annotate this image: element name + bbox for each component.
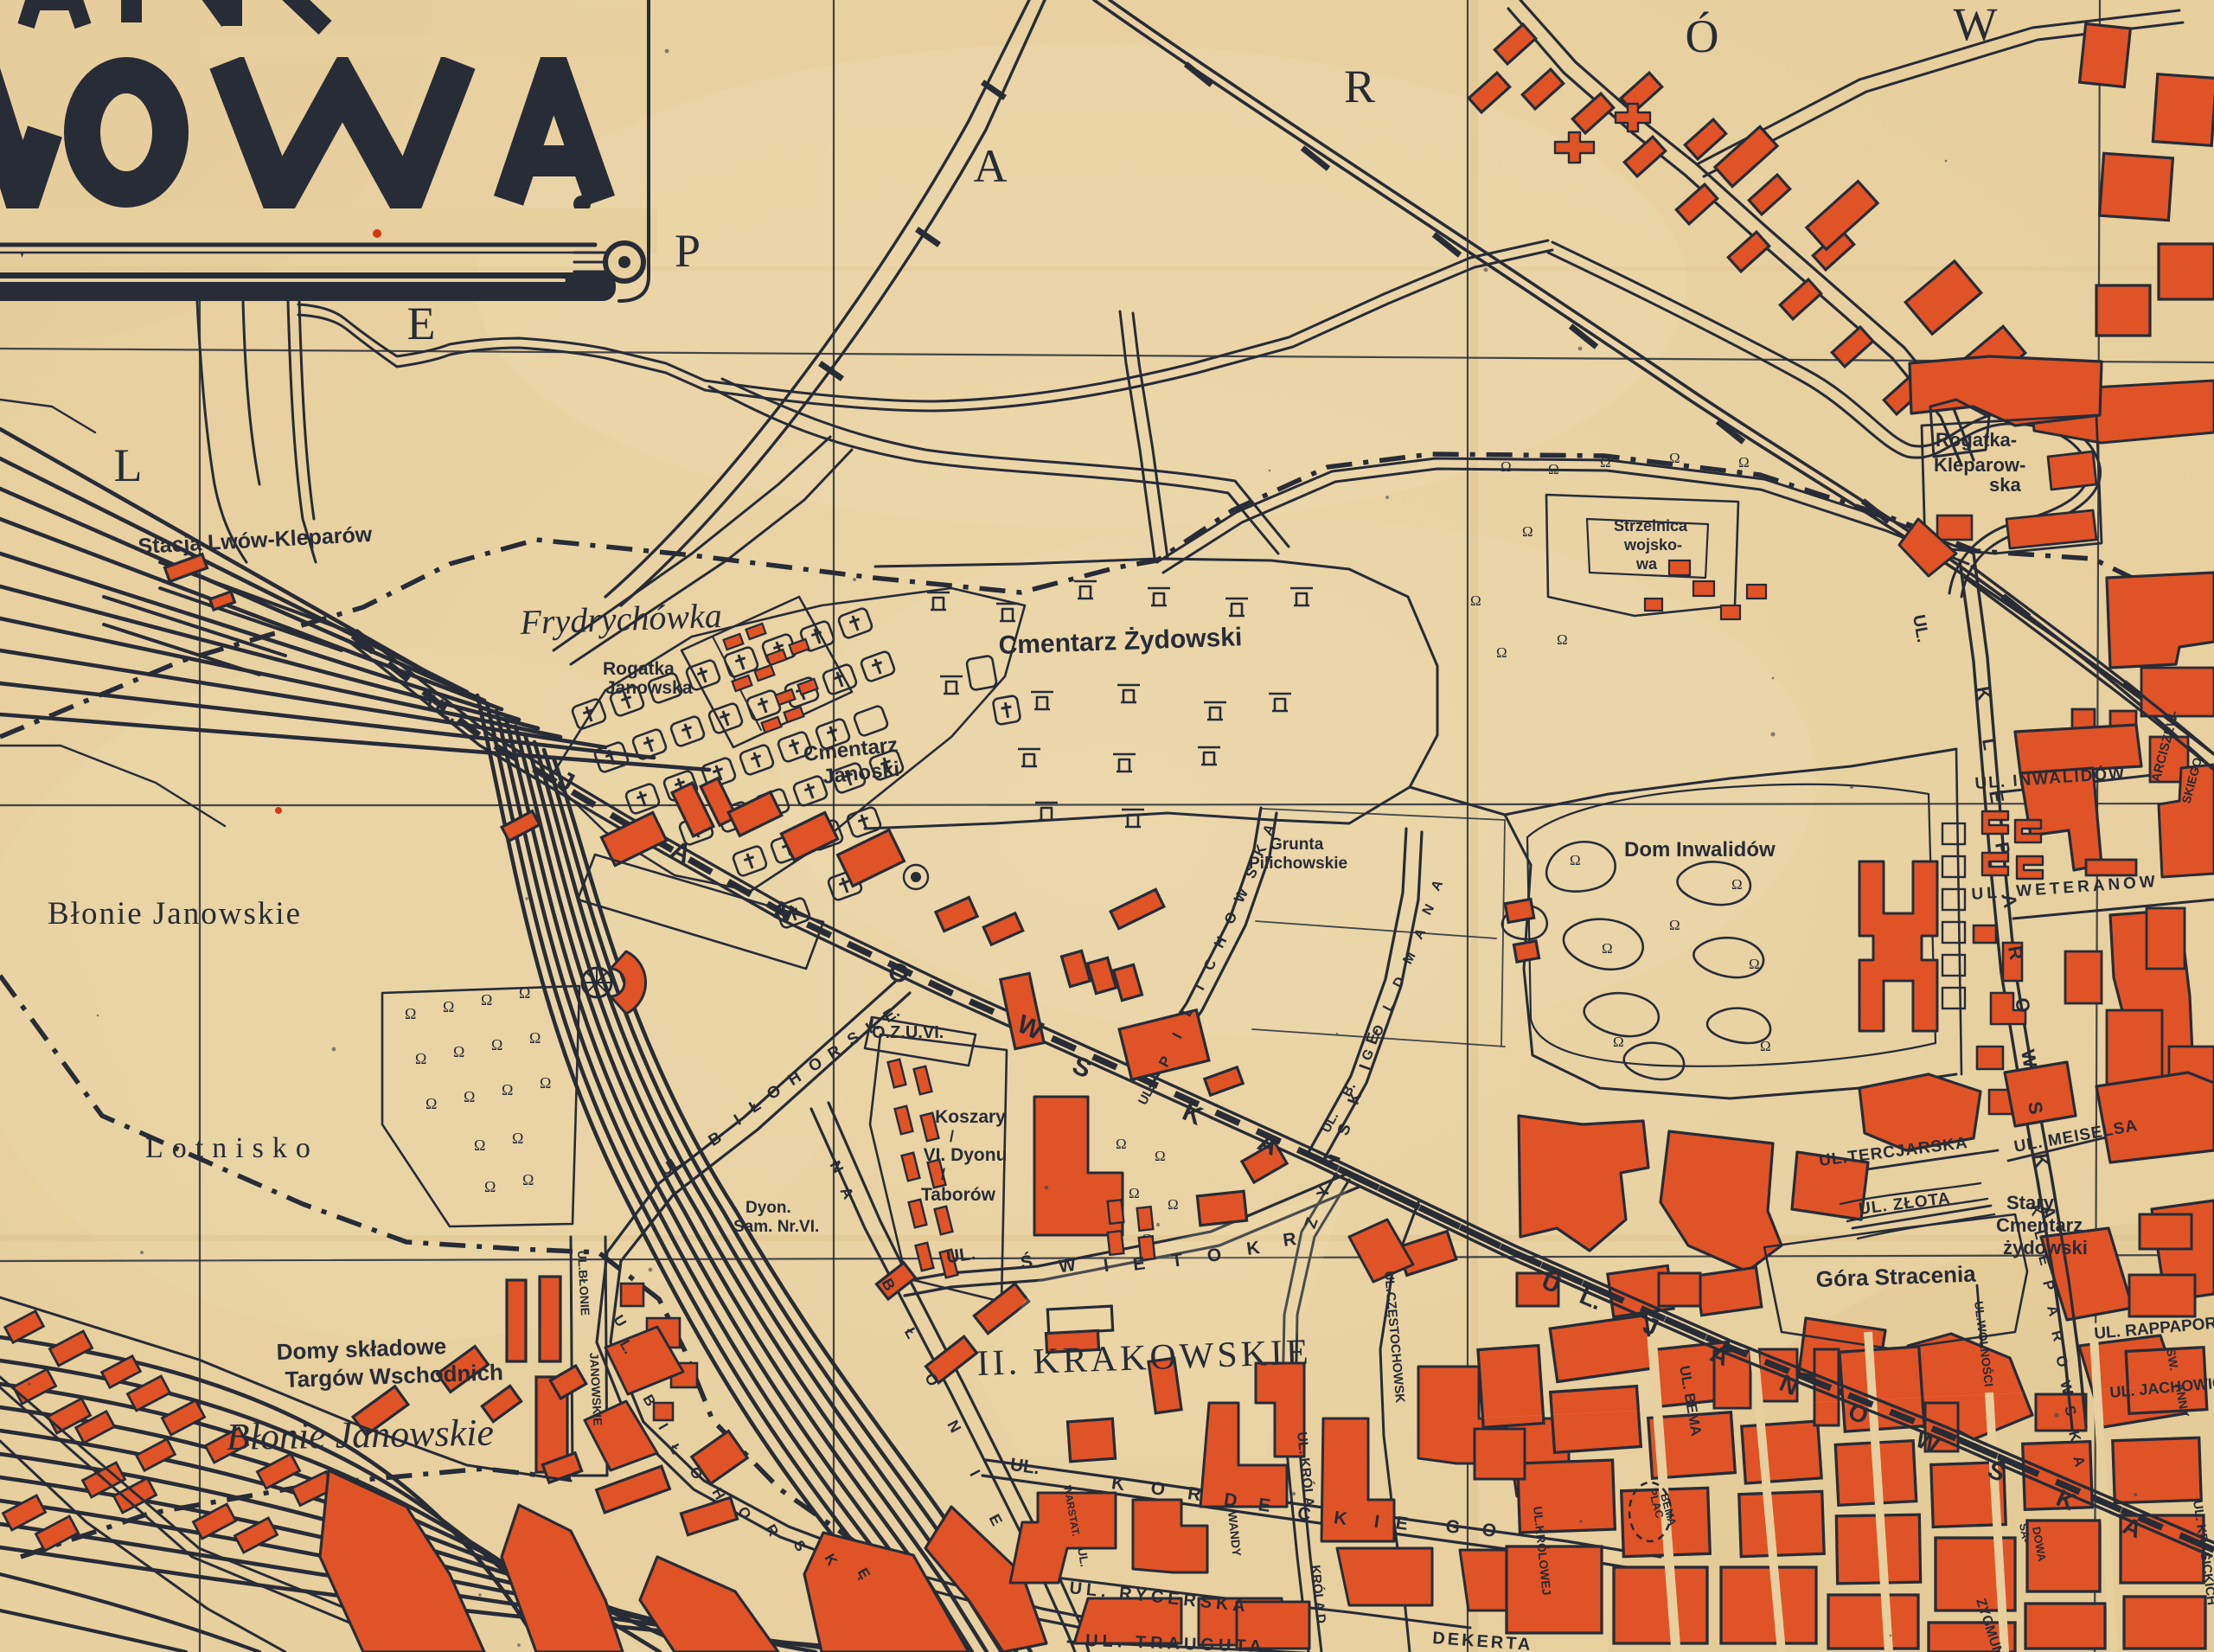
svg-text:Ω: Ω: [1168, 1196, 1179, 1213]
svg-text:Ω: Ω: [1116, 1136, 1127, 1152]
svg-text:A: A: [974, 140, 1008, 192]
svg-text:Ω: Ω: [426, 1095, 437, 1112]
svg-text:Grunta: Grunta: [1270, 836, 1324, 854]
svg-text:Sam. Nr.VI.: Sam. Nr.VI.: [733, 1218, 819, 1236]
svg-text:R: R: [1282, 1229, 1297, 1251]
svg-text:E: E: [407, 298, 436, 349]
svg-text:Taborów: Taborów: [921, 1185, 996, 1205]
svg-text:G: G: [1444, 1516, 1461, 1538]
svg-text:Dom Inwalidów: Dom Inwalidów: [1624, 838, 1776, 861]
svg-text:Ω: Ω: [1496, 644, 1507, 661]
svg-text:O.Z.U.VI.: O.Z.U.VI.: [872, 1023, 944, 1042]
svg-text:VI. Dyonu: VI. Dyonu: [924, 1145, 1008, 1165]
svg-text:Rogatka: Rogatka: [603, 659, 675, 679]
svg-text:Ω: Ω: [1155, 1148, 1166, 1164]
svg-text:Koszary: Koszary: [935, 1107, 1006, 1127]
svg-text:L: L: [114, 439, 143, 491]
svg-text:K: K: [1245, 1238, 1261, 1259]
svg-text:Ω: Ω: [1731, 876, 1743, 893]
svg-text:Błonie Janowskie: Błonie Janowskie: [226, 1412, 494, 1458]
svg-text:Frydrychówka: Frydrychówka: [519, 596, 723, 642]
svg-text:Błonie Janowskie: Błonie Janowskie: [48, 896, 302, 932]
svg-text:ska: ska: [1989, 474, 2021, 496]
svg-text:Ω: Ω: [519, 984, 530, 1002]
svg-text:W: W: [1058, 1255, 1078, 1277]
svg-text:Ω: Ω: [481, 991, 492, 1008]
svg-text:R: R: [1187, 1483, 1202, 1505]
svg-text:Rogatka-: Rogatka-: [1936, 429, 2017, 451]
svg-text:O: O: [1481, 1520, 1497, 1541]
svg-text:Ω: Ω: [1570, 852, 1581, 868]
svg-text:Lotnisko: Lotnisko: [145, 1132, 319, 1164]
svg-text:Ω: Ω: [464, 1088, 475, 1105]
svg-text:Ω: Ω: [491, 1036, 502, 1053]
svg-text:D: D: [1223, 1489, 1238, 1511]
svg-text:Ω: Ω: [484, 1178, 496, 1195]
svg-text:K: K: [1110, 1473, 1126, 1495]
svg-text:Ω: Ω: [1557, 631, 1568, 648]
svg-text:Ω: Ω: [522, 1171, 534, 1188]
svg-text:Ω: Ω: [1129, 1185, 1140, 1201]
svg-text:Ω: Ω: [474, 1137, 485, 1154]
svg-text:Ω: Ω: [1669, 450, 1680, 466]
svg-text:Ω: Ω: [415, 1050, 426, 1067]
svg-text:Ω: Ω: [405, 1005, 416, 1022]
svg-text:W: W: [1954, 0, 1998, 50]
svg-text:UL.: UL.: [945, 1244, 977, 1267]
svg-text:Ó: Ó: [1686, 10, 1719, 62]
svg-text:Ω: Ω: [1522, 523, 1533, 540]
svg-text:Strzelnica: Strzelnica: [1614, 517, 1688, 535]
svg-text:Ω: Ω: [512, 1130, 523, 1147]
svg-text:O: O: [1149, 1478, 1166, 1500]
svg-text:Ω: Ω: [1738, 454, 1750, 471]
svg-text:R: R: [1344, 61, 1375, 112]
svg-text:wa: wa: [1635, 555, 1658, 573]
svg-text:Ω: Ω: [1749, 956, 1760, 972]
svg-text:Ω: Ω: [1760, 1038, 1771, 1054]
svg-text:Ω: Ω: [453, 1043, 464, 1060]
svg-text:Ω: Ω: [502, 1081, 513, 1098]
svg-text:/: /: [950, 1128, 954, 1145]
svg-text:Kleparow-: Kleparow-: [1934, 454, 2025, 476]
svg-text:wojsko-: wojsko-: [1623, 536, 1682, 554]
svg-text:Ω: Ω: [1602, 940, 1613, 957]
svg-text:Ω: Ω: [1501, 458, 1512, 475]
svg-text:P: P: [675, 225, 701, 277]
svg-text:Ω: Ω: [1548, 461, 1559, 477]
svg-text:UL.: UL.: [1009, 1455, 1041, 1478]
svg-text:Ω: Ω: [1470, 592, 1481, 609]
svg-text:Ω: Ω: [443, 998, 454, 1015]
svg-text:K: K: [1333, 1508, 1348, 1529]
svg-text:Ω: Ω: [1600, 454, 1611, 471]
svg-text:Ω: Ω: [529, 1029, 541, 1047]
svg-text:Dyon.: Dyon.: [745, 1199, 791, 1217]
svg-text:Ω: Ω: [1669, 917, 1680, 933]
svg-text:Ω: Ω: [540, 1074, 551, 1092]
svg-text:O: O: [1206, 1245, 1222, 1266]
svg-text:Janowska: Janowska: [605, 678, 693, 698]
svg-text:/: /: [941, 1166, 945, 1183]
svg-text:Ω: Ω: [1613, 1034, 1624, 1050]
